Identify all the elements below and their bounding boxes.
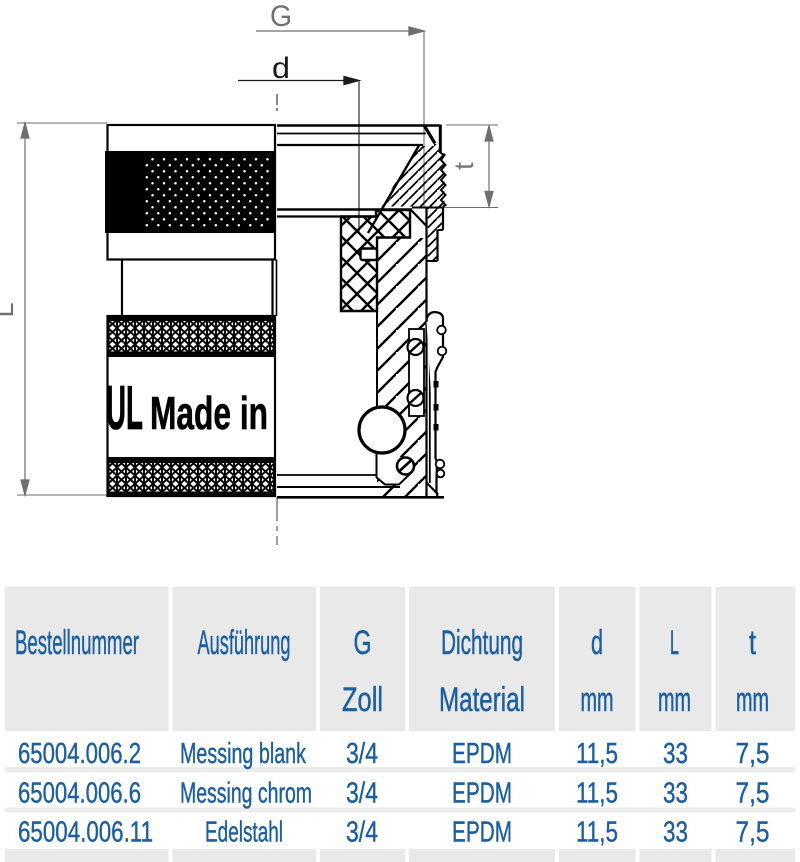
svg-text:7,5: 7,5 <box>736 817 770 849</box>
svg-text:7,5: 7,5 <box>736 778 770 810</box>
svg-text:Material: Material <box>439 681 525 719</box>
svg-text:65004.006.6: 65004.006.6 <box>18 778 141 810</box>
svg-text:11,5: 11,5 <box>576 738 618 770</box>
svg-text:G: G <box>270 0 292 33</box>
svg-text:Messing chrom: Messing chrom <box>180 778 312 810</box>
svg-text:Bestellnummer: Bestellnummer <box>15 624 139 662</box>
svg-text:mm: mm <box>736 681 769 719</box>
svg-text:t: t <box>449 162 479 170</box>
svg-text:L: L <box>670 624 679 662</box>
svg-text:33: 33 <box>663 738 688 770</box>
svg-text:G: G <box>354 624 372 662</box>
svg-text:mm: mm <box>581 681 614 719</box>
svg-text:EPDM: EPDM <box>452 817 512 849</box>
svg-text:EPDM: EPDM <box>452 778 512 810</box>
svg-text:3/4: 3/4 <box>346 738 378 770</box>
svg-text:Messing blank: Messing blank <box>180 738 306 770</box>
svg-text:3/4: 3/4 <box>346 778 378 810</box>
svg-text:7,5: 7,5 <box>736 738 770 770</box>
svg-text:mm: mm <box>658 681 691 719</box>
svg-text:33: 33 <box>663 778 688 810</box>
svg-text:Edelstahl: Edelstahl <box>205 817 283 849</box>
svg-text:65004.006.11: 65004.006.11 <box>18 817 153 849</box>
svg-text:3/4: 3/4 <box>346 817 378 849</box>
svg-text:t: t <box>749 624 756 662</box>
svg-text:33: 33 <box>663 817 688 849</box>
svg-text:EPDM: EPDM <box>452 738 512 770</box>
svg-text:Ausführung: Ausführung <box>198 624 291 662</box>
svg-text:L: L <box>0 302 19 317</box>
svg-text:11,5: 11,5 <box>576 778 618 810</box>
svg-text:Dichtung: Dichtung <box>441 624 523 662</box>
svg-text:UL: UL <box>106 374 143 443</box>
svg-text:Made in: Made in <box>150 387 268 439</box>
svg-text:Zoll: Zoll <box>342 681 383 719</box>
svg-text:11,5: 11,5 <box>576 817 618 849</box>
svg-text:65004.006.2: 65004.006.2 <box>18 738 141 770</box>
svg-text:d: d <box>591 624 603 662</box>
